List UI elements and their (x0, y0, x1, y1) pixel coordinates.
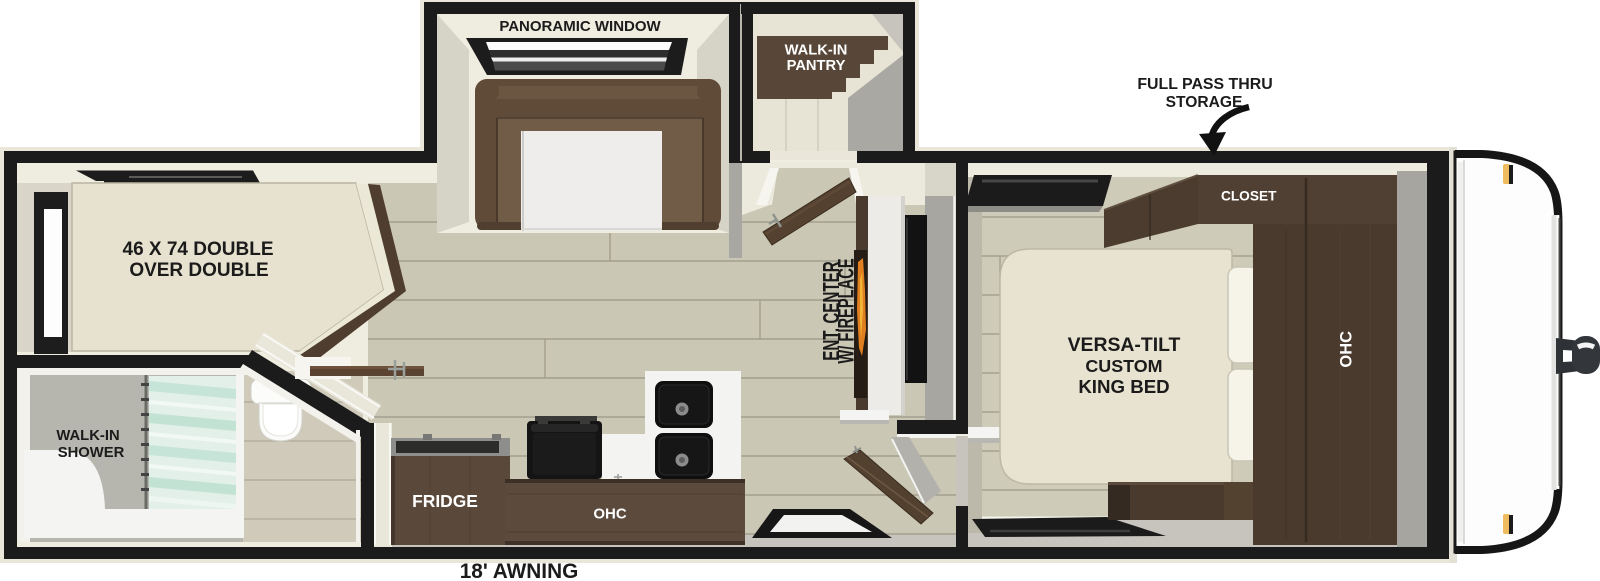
svg-text:KING BED: KING BED (1078, 376, 1169, 397)
svg-text:PANTRY: PANTRY (787, 58, 846, 74)
svg-text:18' AWNING: 18' AWNING (460, 560, 579, 581)
svg-text:VERSA-TILT: VERSA-TILT (1068, 334, 1181, 356)
svg-text:WALK-IN: WALK-IN (785, 43, 848, 59)
svg-text:OHC: OHC (593, 506, 627, 523)
svg-text:46 X 74 DOUBLE: 46 X 74 DOUBLE (123, 239, 274, 260)
svg-text:FULL PASS THRU: FULL PASS THRU (1137, 76, 1272, 93)
svg-text:STORAGE: STORAGE (1166, 94, 1243, 111)
svg-text:W/ FIREPLACE: W/ FIREPLACE (834, 258, 859, 363)
svg-text:OVER DOUBLE: OVER DOUBLE (129, 260, 268, 281)
svg-text:WALK-IN: WALK-IN (56, 428, 119, 444)
svg-text:FRIDGE: FRIDGE (412, 491, 478, 511)
svg-text:OHC: OHC (1338, 331, 1356, 368)
svg-text:SHOWER: SHOWER (58, 445, 125, 461)
svg-text:CUSTOM: CUSTOM (1085, 356, 1162, 376)
svg-text:PANORAMIC WINDOW: PANORAMIC WINDOW (499, 18, 661, 35)
svg-text:CLOSET: CLOSET (1221, 189, 1277, 204)
